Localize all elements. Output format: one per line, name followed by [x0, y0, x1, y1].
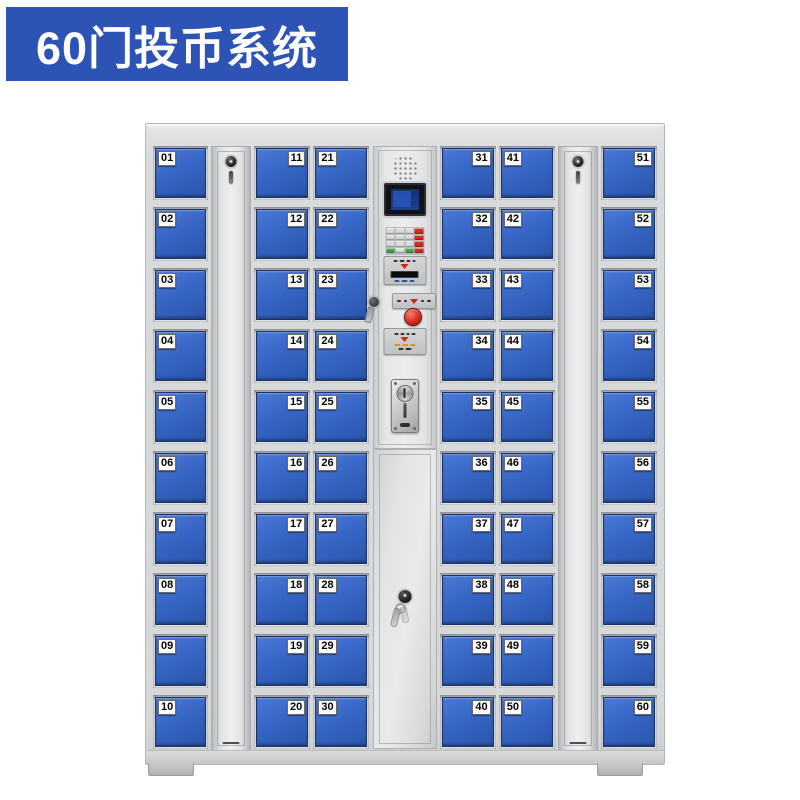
- page: { "banner": { "title": "60门投币系统", "backg…: [0, 0, 800, 800]
- door-grid: 01020304050607080910 1112131415161718192…: [153, 146, 657, 749]
- locker-door: 17: [256, 514, 308, 564]
- coin-channel: [403, 403, 406, 418]
- keypad-key: [386, 248, 395, 254]
- coin-acceptor: [391, 379, 419, 433]
- locker-door-cell: 55: [601, 390, 657, 444]
- locker-door-cell: 41: [499, 146, 555, 200]
- door-number-label: 12: [287, 212, 305, 227]
- key-lock-strip-left: [211, 146, 251, 751]
- red-start-button: [404, 308, 422, 326]
- title-banner: 60门投币系统: [6, 7, 348, 81]
- locker-door: 05: [155, 392, 206, 442]
- door-number-label: 59: [634, 639, 652, 654]
- door-number-label: 36: [472, 456, 490, 471]
- keypad-key: [415, 241, 424, 247]
- door-number-label: 27: [318, 517, 336, 532]
- locker-cabinet: 01020304050607080910 1112131415161718192…: [145, 123, 665, 787]
- locker-door: 58: [603, 575, 655, 625]
- door-number-label: 13: [287, 273, 305, 288]
- locker-door: 32: [442, 209, 494, 259]
- door-number-label: 19: [287, 639, 305, 654]
- door-number-label: 09: [158, 639, 176, 654]
- locker-door-cell: 27: [313, 512, 369, 566]
- door-number-label: 22: [318, 212, 336, 227]
- door-number-label: 10: [158, 700, 176, 715]
- key-lock-icon: [226, 156, 237, 167]
- locker-door: 57: [603, 514, 655, 564]
- locker-door: 51: [603, 148, 655, 198]
- locker-door: 42: [501, 209, 553, 259]
- locker-door-cell: 12: [254, 207, 310, 261]
- locker-door: 52: [603, 209, 655, 259]
- screw-icon: [413, 382, 416, 385]
- door-number-label: 16: [287, 456, 305, 471]
- locker-door: 15: [256, 392, 308, 442]
- locker-door: 22: [315, 209, 367, 259]
- locker-door-cell: 04: [153, 329, 208, 383]
- numeric-keypad: [385, 227, 424, 254]
- cabinet-body: 01020304050607080910 1112131415161718192…: [145, 123, 665, 765]
- locker-door: 13: [256, 270, 308, 320]
- locker-door: 38: [442, 575, 494, 625]
- door-number-label: 06: [158, 456, 176, 471]
- keypad-key: [396, 241, 405, 247]
- door-number-label: 51: [634, 151, 652, 166]
- locker-door: 30: [315, 697, 367, 747]
- locker-door-cell: 43: [499, 268, 555, 322]
- locker-door: 40: [442, 697, 494, 747]
- locker-door: 07: [155, 514, 206, 564]
- locker-door-cell: 18: [254, 573, 310, 627]
- locker-door: 21: [315, 148, 367, 198]
- locker-door-cell: 56: [601, 451, 657, 505]
- locker-door-cell: 02: [153, 207, 208, 261]
- locker-door: 24: [315, 331, 367, 381]
- keypad-key: [386, 241, 395, 247]
- locker-door: 25: [315, 392, 367, 442]
- locker-door: 54: [603, 331, 655, 381]
- locker-door-cell: 07: [153, 512, 208, 566]
- locker-door-cell: 24: [313, 329, 369, 383]
- plate-title-text: [394, 333, 415, 335]
- door-number-label: 41: [504, 151, 522, 166]
- down-arrow-icon: [410, 299, 418, 304]
- door-number-label: 29: [318, 639, 336, 654]
- cabinet-foot: [597, 763, 643, 776]
- door-column-31-40: 31323334353637383940: [440, 146, 496, 749]
- door-number-label: 28: [318, 578, 336, 593]
- locker-door: 20: [256, 697, 308, 747]
- locker-door: 29: [315, 636, 367, 686]
- door-column-41-50: 41424344454647484950: [499, 146, 555, 749]
- locker-door: 48: [501, 575, 553, 625]
- door-number-label: 39: [472, 639, 490, 654]
- key-lock-strip-right: [558, 146, 598, 751]
- card-reader: [383, 256, 426, 285]
- door-number-label: 53: [634, 273, 652, 288]
- vent-slot: [223, 742, 240, 744]
- locker-door-cell: 50: [499, 695, 555, 749]
- locker-door-cell: 38: [440, 573, 496, 627]
- door-number-label: 15: [287, 395, 305, 410]
- lcd-display: [384, 183, 426, 216]
- locker-door-cell: 54: [601, 329, 657, 383]
- locker-door: 27: [315, 514, 367, 564]
- door-number-label: 18: [287, 578, 305, 593]
- door-number-label: 38: [472, 578, 490, 593]
- door-number-label: 24: [318, 334, 336, 349]
- locker-door: 10: [155, 697, 206, 747]
- locker-door: 49: [501, 636, 553, 686]
- control-panel: [373, 146, 437, 449]
- locker-door-cell: 42: [499, 207, 555, 261]
- locker-door: 43: [501, 270, 553, 320]
- panel-key-lock-icon: [369, 297, 379, 307]
- door-column-51-60: 51525354555657585960: [601, 146, 657, 749]
- door-number-label: 55: [634, 395, 652, 410]
- locker-door: 60: [603, 697, 655, 747]
- locker-door: 36: [442, 453, 494, 503]
- door-number-label: 45: [504, 395, 522, 410]
- locker-door-cell: 53: [601, 268, 657, 322]
- keypad-key: [405, 248, 414, 254]
- door-column-21-30: 21222324252627282930: [313, 146, 369, 749]
- locker-door: 31: [442, 148, 494, 198]
- door-number-label: 07: [158, 517, 176, 532]
- door-number-label: 52: [634, 212, 652, 227]
- locker-door-cell: 45: [499, 390, 555, 444]
- locker-door: 04: [155, 331, 206, 381]
- coin-slot-icon: [396, 385, 413, 402]
- locker-door-cell: 37: [440, 512, 496, 566]
- lock-and-button-zone: [374, 293, 436, 327]
- lcd-screen: [391, 189, 419, 210]
- door-number-label: 54: [634, 334, 652, 349]
- keypad-key: [386, 235, 395, 241]
- cabinet-base: [146, 750, 664, 764]
- locker-door-cell: 44: [499, 329, 555, 383]
- locker-door: 45: [501, 392, 553, 442]
- coin-return-lever: [400, 423, 410, 427]
- keypad-key: [405, 241, 414, 247]
- locker-door-cell: 16: [254, 451, 310, 505]
- reader-label-text: [394, 260, 416, 262]
- locker-door: 08: [155, 575, 206, 625]
- door-number-label: 32: [472, 212, 490, 227]
- locker-door: 35: [442, 392, 494, 442]
- locker-door: 19: [256, 636, 308, 686]
- locker-door: 33: [442, 270, 494, 320]
- locker-door: 09: [155, 636, 206, 686]
- screw-icon: [413, 427, 416, 430]
- locker-door-cell: 39: [440, 634, 496, 688]
- door-number-label: 58: [634, 578, 652, 593]
- locker-door: 23: [315, 270, 367, 320]
- door-number-label: 01: [158, 151, 176, 166]
- door-number-label: 17: [287, 517, 305, 532]
- locker-door: 12: [256, 209, 308, 259]
- locker-door-cell: 60: [601, 695, 657, 749]
- plate-footer-text: [398, 348, 411, 350]
- keypad-key: [396, 228, 405, 234]
- door-number-label: 49: [504, 639, 522, 654]
- service-door: [373, 449, 437, 749]
- speaker-grille-icon: [392, 155, 418, 181]
- door-number-label: 34: [472, 334, 490, 349]
- locker-door-cell: 05: [153, 390, 208, 444]
- locker-door: 14: [256, 331, 308, 381]
- locker-door-cell: 08: [153, 573, 208, 627]
- locker-door-cell: 33: [440, 268, 496, 322]
- insert-arrow-icon: [401, 264, 409, 269]
- door-number-label: 03: [158, 273, 176, 288]
- locker-door-cell: 48: [499, 573, 555, 627]
- keypad-key: [396, 235, 405, 241]
- hanging-key-icon: [229, 171, 233, 184]
- locker-door-cell: 19: [254, 634, 310, 688]
- door-number-label: 35: [472, 395, 490, 410]
- key-lock-icon: [572, 156, 583, 167]
- hanging-key-icon: [399, 606, 409, 623]
- keypad-key: [386, 228, 395, 234]
- vent-slot: [569, 742, 586, 744]
- locker-door: 37: [442, 514, 494, 564]
- door-number-label: 43: [504, 273, 522, 288]
- locker-door-cell: 21: [313, 146, 369, 200]
- locker-door: 59: [603, 636, 655, 686]
- service-door-lock-icon: [398, 590, 411, 603]
- locker-door: 03: [155, 270, 206, 320]
- hanging-key-icon: [576, 171, 580, 184]
- locker-door-cell: 58: [601, 573, 657, 627]
- cabinet-foot: [148, 763, 194, 776]
- locker-door: 50: [501, 697, 553, 747]
- locker-door-cell: 20: [254, 695, 310, 749]
- door-number-label: 08: [158, 578, 176, 593]
- screw-icon: [394, 382, 397, 385]
- locker-door-cell: 51: [601, 146, 657, 200]
- control-column: [373, 146, 437, 749]
- locker-door-cell: 22: [313, 207, 369, 261]
- locker-door-cell: 59: [601, 634, 657, 688]
- locker-door-cell: 14: [254, 329, 310, 383]
- locker-door: 02: [155, 209, 206, 259]
- instruction-plate: [383, 328, 426, 355]
- locker-door-cell: 32: [440, 207, 496, 261]
- locker-door-cell: 10: [153, 695, 208, 749]
- locker-door-cell: 49: [499, 634, 555, 688]
- locker-door-cell: 26: [313, 451, 369, 505]
- locker-door: 53: [603, 270, 655, 320]
- door-number-label: 44: [504, 334, 522, 349]
- door-number-label: 33: [472, 273, 490, 288]
- down-arrow-icon: [401, 337, 409, 342]
- locker-door-cell: 36: [440, 451, 496, 505]
- banner-title-text: 60门投币系统: [36, 12, 318, 77]
- locker-door-cell: 31: [440, 146, 496, 200]
- locker-door-cell: 29: [313, 634, 369, 688]
- door-number-label: 37: [472, 517, 490, 532]
- instruction-mini-plate: [392, 293, 436, 309]
- locker-door-cell: 06: [153, 451, 208, 505]
- locker-door: 39: [442, 636, 494, 686]
- door-number-label: 60: [634, 700, 652, 715]
- door-number-label: 21: [318, 151, 336, 166]
- door-number-label: 04: [158, 334, 176, 349]
- door-number-label: 42: [504, 212, 522, 227]
- locker-door-cell: 52: [601, 207, 657, 261]
- door-column-11-20: 11121314151617181920: [254, 146, 310, 749]
- locker-door: 55: [603, 392, 655, 442]
- locker-door: 16: [256, 453, 308, 503]
- door-number-label: 11: [288, 151, 306, 166]
- locker-door-cell: 28: [313, 573, 369, 627]
- locker-door-cell: 13: [254, 268, 310, 322]
- locker-door-cell: 23: [313, 268, 369, 322]
- screw-icon: [394, 427, 397, 430]
- locker-door-cell: 09: [153, 634, 208, 688]
- keypad-key: [415, 228, 424, 234]
- keypad-key: [415, 248, 424, 254]
- door-number-label: 30: [318, 700, 336, 715]
- locker-door-cell: 47: [499, 512, 555, 566]
- door-number-label: 40: [472, 700, 490, 715]
- locker-door-cell: 46: [499, 451, 555, 505]
- locker-door-cell: 34: [440, 329, 496, 383]
- locker-door-cell: 17: [254, 512, 310, 566]
- keypad-key: [405, 235, 414, 241]
- locker-door-cell: 03: [153, 268, 208, 322]
- locker-door: 28: [315, 575, 367, 625]
- door-number-label: 31: [472, 151, 490, 166]
- locker-door: 06: [155, 453, 206, 503]
- locker-door: 18: [256, 575, 308, 625]
- locker-door: 26: [315, 453, 367, 503]
- reader-sub-text: [395, 280, 415, 282]
- locker-door: 44: [501, 331, 553, 381]
- locker-door: 01: [155, 148, 206, 198]
- door-number-label: 14: [287, 334, 305, 349]
- locker-door-cell: 25: [313, 390, 369, 444]
- locker-door: 11: [256, 148, 308, 198]
- locker-door-cell: 11: [254, 146, 310, 200]
- door-number-label: 56: [634, 456, 652, 471]
- door-number-label: 02: [158, 212, 176, 227]
- door-number-label: 50: [504, 700, 522, 715]
- door-number-label: 26: [318, 456, 336, 471]
- keypad-key: [415, 235, 424, 241]
- door-number-label: 25: [318, 395, 336, 410]
- locker-door: 47: [501, 514, 553, 564]
- door-number-label: 05: [158, 395, 176, 410]
- locker-door: 34: [442, 331, 494, 381]
- door-number-label: 47: [504, 517, 522, 532]
- door-number-label: 23: [318, 273, 336, 288]
- locker-door-cell: 57: [601, 512, 657, 566]
- locker-door: 46: [501, 453, 553, 503]
- locker-door-cell: 30: [313, 695, 369, 749]
- card-slot: [391, 271, 419, 278]
- locker-door: 56: [603, 453, 655, 503]
- locker-door: 41: [501, 148, 553, 198]
- door-number-label: 20: [287, 700, 305, 715]
- door-column-01-10: 01020304050607080910: [153, 146, 208, 749]
- door-number-label: 57: [634, 517, 652, 532]
- plate-highlight-text: [394, 344, 415, 346]
- keypad-key: [396, 248, 405, 254]
- locker-door-cell: 15: [254, 390, 310, 444]
- locker-door-cell: 01: [153, 146, 208, 200]
- keypad-key: [405, 228, 414, 234]
- door-number-label: 46: [504, 456, 522, 471]
- locker-door-cell: 35: [440, 390, 496, 444]
- locker-door-cell: 40: [440, 695, 496, 749]
- door-number-label: 48: [504, 578, 522, 593]
